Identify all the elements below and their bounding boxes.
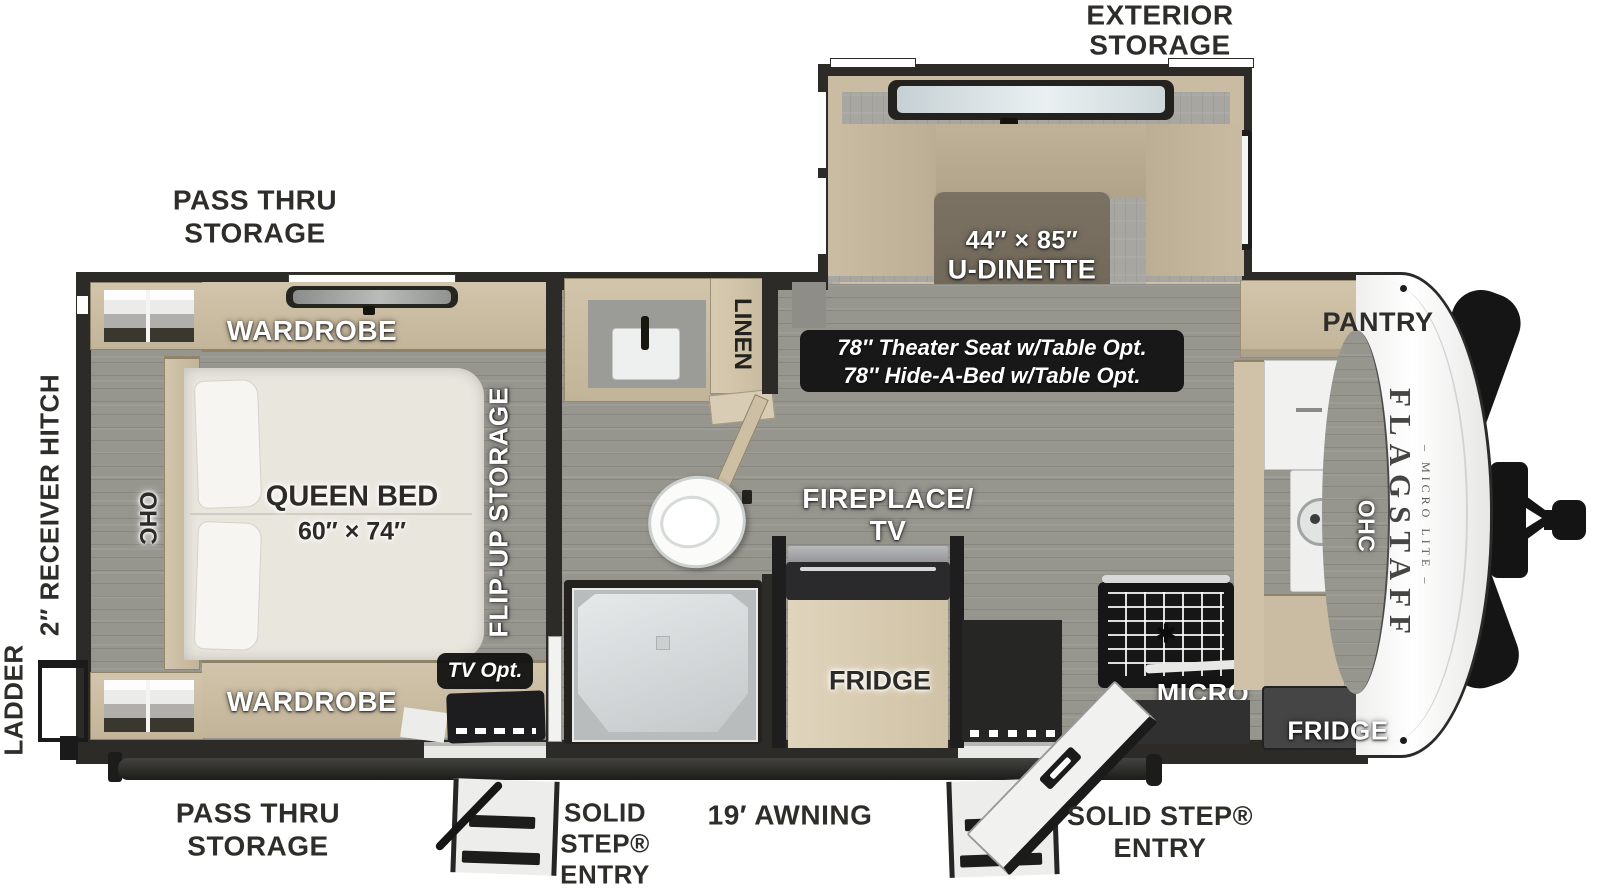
- fireplace-handle-icon: [800, 567, 936, 571]
- fireplace-tv-label-line2: TV: [870, 515, 907, 547]
- awning-label: 19′ AWNING: [708, 799, 873, 830]
- hitch-jack: [1490, 462, 1528, 578]
- awning-bar: [118, 758, 1154, 780]
- fridge-left-label: FRIDGE: [829, 666, 931, 697]
- slideout-exterior-trim-left: [830, 58, 916, 68]
- pass-thru-top-label-line1: PASS THRU: [173, 184, 337, 215]
- pass-thru-bottom-label-line2: STORAGE: [187, 830, 328, 861]
- cap-screw-bottom-icon: [1400, 737, 1407, 744]
- bed-pillow-top: [194, 379, 262, 509]
- step-tread: [462, 851, 540, 866]
- awning-cap-right: [1146, 754, 1162, 786]
- brand-logo: FLAGSTAFF – MICRO LITE –: [1382, 341, 1460, 689]
- stove-handle-icon: [1102, 575, 1230, 583]
- entry-step-lights-icon: [970, 730, 1056, 737]
- dinette-skylight-glass: [897, 86, 1165, 113]
- theater-seat-option-line1: 78″ Theater Seat w/Table Opt.: [800, 334, 1184, 362]
- kitchen-faucet-icon: [1310, 514, 1320, 524]
- brand-series: – MICRO LITE –: [1418, 343, 1433, 689]
- tv-opt-badge: TV Opt.: [437, 653, 533, 689]
- pantry-label: PANTRY: [1323, 307, 1434, 337]
- ladder-icon: [38, 660, 88, 742]
- dinette-bench-back: [936, 124, 1146, 198]
- step-tread: [469, 815, 535, 829]
- rear-window: [77, 296, 88, 314]
- kitchen-door-handle-icon: [1296, 408, 1322, 412]
- fireplace-rail-left: [772, 536, 786, 748]
- shower-pan: [578, 594, 748, 732]
- bath-door-handle-icon: [742, 490, 752, 504]
- bedroom-shelf-pole-bottom-icon: [146, 680, 150, 732]
- steps-left: [450, 778, 559, 876]
- bedroom-skylight-glass: [293, 290, 451, 304]
- ladder-label: LADDER: [0, 644, 29, 755]
- receiver-hitch-label: 2″ RECEIVER HITCH: [35, 374, 64, 636]
- bed-pillow-bottom: [194, 521, 262, 651]
- solid-step-left-line3: ENTRY: [560, 860, 650, 889]
- pass-thru-top-label-line2: STORAGE: [184, 217, 325, 248]
- hitch-aframe-inner: [1526, 508, 1542, 528]
- bedroom-ohc-label: OHC: [133, 491, 161, 544]
- stove-burner-icon: ✱: [1155, 619, 1177, 650]
- linen-label: LINEN: [728, 298, 756, 370]
- slide-seat-edge: [792, 282, 826, 328]
- slideout-window-left-upper: [818, 92, 826, 168]
- pass-thru-bottom-label-line1: PASS THRU: [176, 797, 340, 828]
- bedroom-vent-knob-icon: [363, 306, 375, 315]
- solid-step-left-line2: STEP®: [560, 829, 650, 858]
- bed-corner-trim: [400, 707, 448, 743]
- cap-screw-top-icon: [1400, 285, 1407, 292]
- solid-step-left-line1: SOLID: [564, 798, 646, 827]
- dinette-bench-right: [1146, 124, 1242, 276]
- ladder-mount: [60, 736, 78, 760]
- theater-seat-option-badge: 78″ Theater Seat w/Table Opt. 78″ Hide-A…: [800, 330, 1184, 392]
- exterior-storage-label-line2: STORAGE: [1089, 29, 1230, 60]
- dinette-bench-left: [840, 124, 936, 276]
- shower-drain-icon: [656, 636, 670, 650]
- queen-bed-label: QUEEN BED: [266, 481, 438, 514]
- bath-faucet-icon: [641, 316, 649, 350]
- solid-step-right-line2: ENTRY: [1113, 833, 1206, 863]
- wall-bath-living-top: [762, 272, 778, 394]
- slideout-window-left-lower: [818, 178, 826, 254]
- tv-stand-dashes: [456, 728, 536, 734]
- exterior-storage-label-line1: EXTERIOR: [1086, 0, 1233, 31]
- theater-seat-option-line2: 78″ Hide-A-Bed w/Table Opt.: [800, 362, 1184, 390]
- wardrobe-top-label: WARDROBE: [227, 315, 397, 347]
- dinette-size-label: 44″ × 85″: [966, 227, 1079, 256]
- kitchen-drawer-column: [1234, 360, 1264, 690]
- dinette-name-label: U-DINETTE: [948, 255, 1097, 286]
- wardrobe-bottom-label: WARDROBE: [227, 686, 397, 718]
- hitch-coupler-icon: [1552, 500, 1586, 540]
- bedroom-pocket-door: [548, 636, 562, 742]
- kitchen-ohc-label: OHC: [1353, 500, 1380, 553]
- bath-vanity-edge: [588, 388, 708, 399]
- floorplan-canvas: 44″ × 85″ U-DINETTE WARDROBE WARDROBE OH…: [0, 0, 1600, 892]
- fridge-right-label: FRIDGE: [1287, 716, 1388, 747]
- tv-stand: [446, 690, 546, 743]
- solid-step-right-line1: SOLID STEP®: [1067, 801, 1253, 831]
- flip-up-storage-label: FLIP-UP STORAGE: [484, 387, 515, 638]
- bedroom-shelf-pole-top-icon: [146, 290, 150, 342]
- queen-bed-size-label: 60″ × 74″: [298, 518, 406, 547]
- entry-landing-right: [962, 620, 1062, 740]
- fireplace-tv-label-line1: FIREPLACE/: [802, 483, 973, 515]
